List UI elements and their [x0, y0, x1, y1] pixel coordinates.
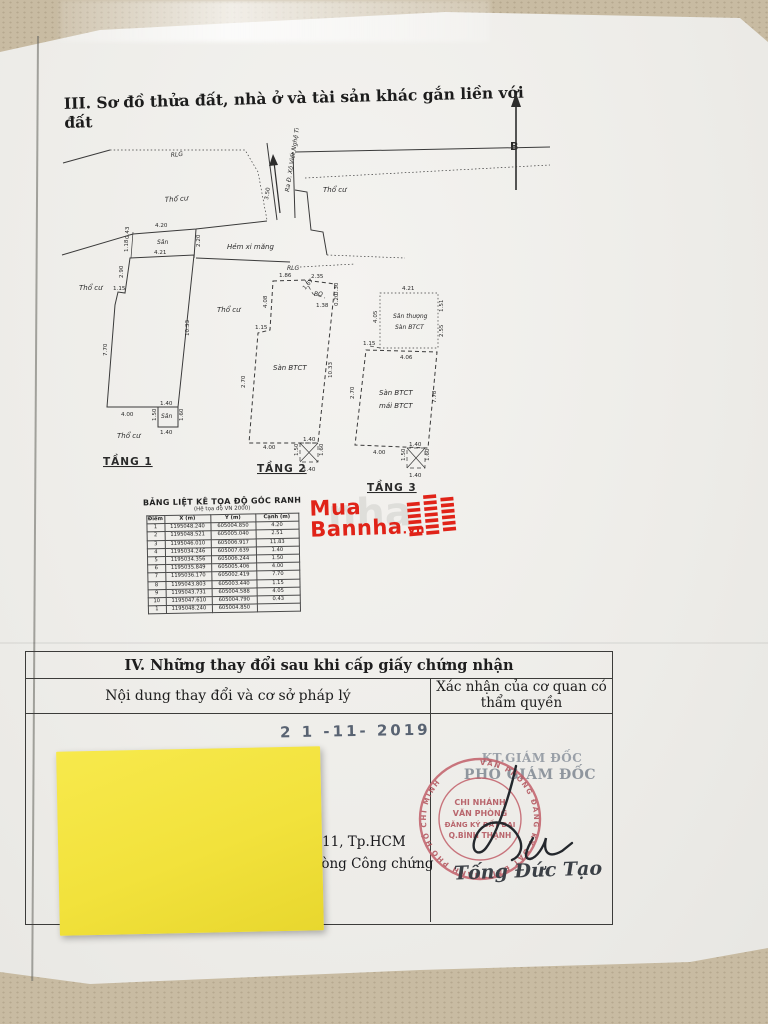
coord-cell [257, 603, 300, 612]
coord-cell: 1195046.010 [165, 539, 211, 548]
dim-label: 1.40 [303, 437, 316, 443]
coord-cell: 1 [148, 606, 166, 615]
paper-crease [0, 642, 768, 644]
dim-label: 10.33 [185, 320, 191, 336]
coord-cell: 10 [148, 598, 166, 607]
dim-label: 1.15 [255, 325, 268, 331]
area-label: Thổ cư [165, 193, 191, 204]
alley-label: Hẻm xi măng [227, 243, 274, 251]
coordinate-table: Điểm X (m) Y (m) Cạnh (m) 11195048.24060… [146, 513, 301, 615]
dim-label: 1.60 [425, 448, 431, 461]
dim-label: 2.55 [439, 324, 445, 337]
paper-top-shine [60, 0, 490, 42]
dim-label: 1.86 [279, 273, 292, 279]
coord-cell: 1195035.849 [165, 564, 211, 573]
dim-label: 4.00 [373, 450, 386, 456]
dim-label: 10.33 [328, 362, 334, 378]
dim-label: 2.20 [196, 234, 202, 247]
dim-label: 2.90 [119, 265, 125, 278]
coord-cell: 9 [148, 589, 166, 598]
coord-cell: 1195034.246 [165, 548, 211, 557]
dim-label: 3.50 [264, 187, 272, 201]
dim-label: 4.20 [155, 223, 168, 229]
dim-label: 4.21 [402, 286, 415, 292]
dim-label: 2.70 [241, 375, 247, 388]
logo-line2-text: Bannha [310, 515, 403, 542]
signature [438, 758, 588, 870]
dim-label: 0.30 [334, 282, 340, 295]
dim-label: 7.78 [432, 390, 438, 403]
floor2-label: TẦNG 2 [257, 461, 307, 475]
dim-label: 4.00 [121, 412, 134, 418]
logo-building-icon [406, 490, 466, 543]
coordinate-table-block: BẢNG LIỆT KÊ TỌA ĐỘ GÓC RANH (Hệ tọa độ … [117, 495, 329, 615]
street-name: Ra Đ. Xô Viết Nghệ Tĩnh [284, 128, 302, 192]
coord-table-body: 11195048.240605004.8504.2021195048.52160… [146, 521, 300, 614]
area-label: Thổ cư [117, 431, 142, 440]
dim-label: 1.15 [113, 286, 126, 292]
dim-label: 1.40 [160, 430, 173, 436]
rlg-label: RLG [170, 151, 183, 159]
area-label: Thổ cư [323, 185, 348, 194]
right-parcel-top [295, 147, 550, 152]
coord-header: Điểm [146, 516, 164, 525]
floor1-label: TẦNG 1 [103, 454, 153, 468]
dim-label: 4.08 [263, 295, 269, 308]
floor3-roof-terrace [380, 293, 438, 348]
right-parcel-steps [295, 190, 327, 255]
section4-col-left-header: Nội dung thay đổi và cơ sở pháp lý [26, 679, 431, 713]
rlg-dotted [300, 264, 355, 267]
dim-label: 2.35 [311, 274, 324, 280]
section4-header-row: Nội dung thay đổi và cơ sở pháp lý Xác n… [26, 679, 612, 714]
alley-bottom [196, 258, 290, 262]
dim-label: 1.50 [152, 408, 158, 421]
coord-cell: 1195034.356 [165, 556, 211, 565]
dim-label: 4.00 [263, 445, 276, 451]
yellow-sticky-note [56, 746, 324, 935]
dim-label: 1.18 [124, 239, 130, 252]
street-arrow-head [269, 154, 278, 166]
terrace-label: Sân thượng [393, 313, 428, 320]
coord-cell: 1195048.240 [166, 605, 212, 614]
alley-dotted [327, 255, 405, 258]
boundary-dotted [110, 150, 267, 220]
floor3-outline [355, 350, 437, 448]
site-plan: Thổ cư Thổ cư Thổ cư Thổ cư Thổ cư RLG R… [55, 128, 560, 508]
floor3-slab-label: Sàn BTCT [379, 389, 413, 397]
dim-label: 1.60 [179, 408, 185, 421]
floor2-slab-label: Sàn BTCT [273, 364, 307, 372]
coord-cell: 1195043.803 [165, 580, 211, 589]
dim-label: 0.43 [125, 226, 131, 239]
right-parcel-dotted [305, 165, 550, 178]
dim-label: 1.15 [363, 341, 376, 347]
dim-label: 4.06 [400, 355, 413, 361]
floor3-porch [407, 448, 425, 468]
section4-col-right-header: Xác nhận của cơ quan có thẩm quyền [431, 679, 612, 713]
dim-label: 1.38 [316, 303, 329, 309]
dim-label: 1.60 [319, 443, 325, 456]
muabannha-logo: nha Mua Bannha.vn [303, 489, 475, 551]
coord-cell: 6 [147, 565, 165, 574]
dim-label: 0.20 [334, 293, 340, 306]
coord-cell: 1195036.170 [165, 572, 211, 581]
san-label: Sân [157, 239, 168, 246]
dim-label: 4.21 [154, 250, 167, 256]
dim-label: 1.51 [439, 299, 445, 312]
floor2-porch [300, 443, 318, 462]
coord-cell: 605004.850 [212, 604, 257, 613]
coord-cell: 8 [147, 581, 165, 590]
coord-cell: 1195048.240 [164, 523, 210, 532]
dim-label: 7.70 [103, 343, 109, 356]
dim-label: 1.40 [160, 401, 173, 407]
san-strip-left [131, 232, 133, 258]
dim-label: 1.40 [409, 473, 422, 479]
coord-cell: 7 [147, 573, 165, 582]
boundary-line [63, 150, 110, 163]
terrace-slab-label: Sàn BTCT [395, 324, 425, 331]
north-arrow-head [511, 93, 521, 107]
area-label: Thổ cư [217, 305, 242, 314]
san-label: Sân [161, 413, 172, 420]
coord-cell: 1195043.731 [166, 589, 212, 598]
coord-cell: 1195048.521 [165, 531, 211, 540]
rlg-label: RLG [287, 265, 300, 272]
dim-label: 1.40 [409, 442, 422, 448]
coord-cell: 1195047.610 [166, 597, 212, 606]
floor3-roof-label: mái BTCT [379, 402, 413, 410]
dim-label: 1.50 [401, 448, 407, 461]
date-stamp: 2 1 -11- 2019 [280, 721, 431, 742]
balcony-label: BO [314, 291, 323, 298]
dim-label: 2.70 [350, 386, 356, 399]
street-left [267, 143, 277, 220]
section4-title: IV. Những thay đổi sau khi cấp giấy chứn… [26, 652, 612, 679]
dim-label: 1.50 [294, 443, 300, 456]
area-label: Thổ cư [79, 283, 104, 292]
dim-label: 4.05 [373, 310, 379, 323]
